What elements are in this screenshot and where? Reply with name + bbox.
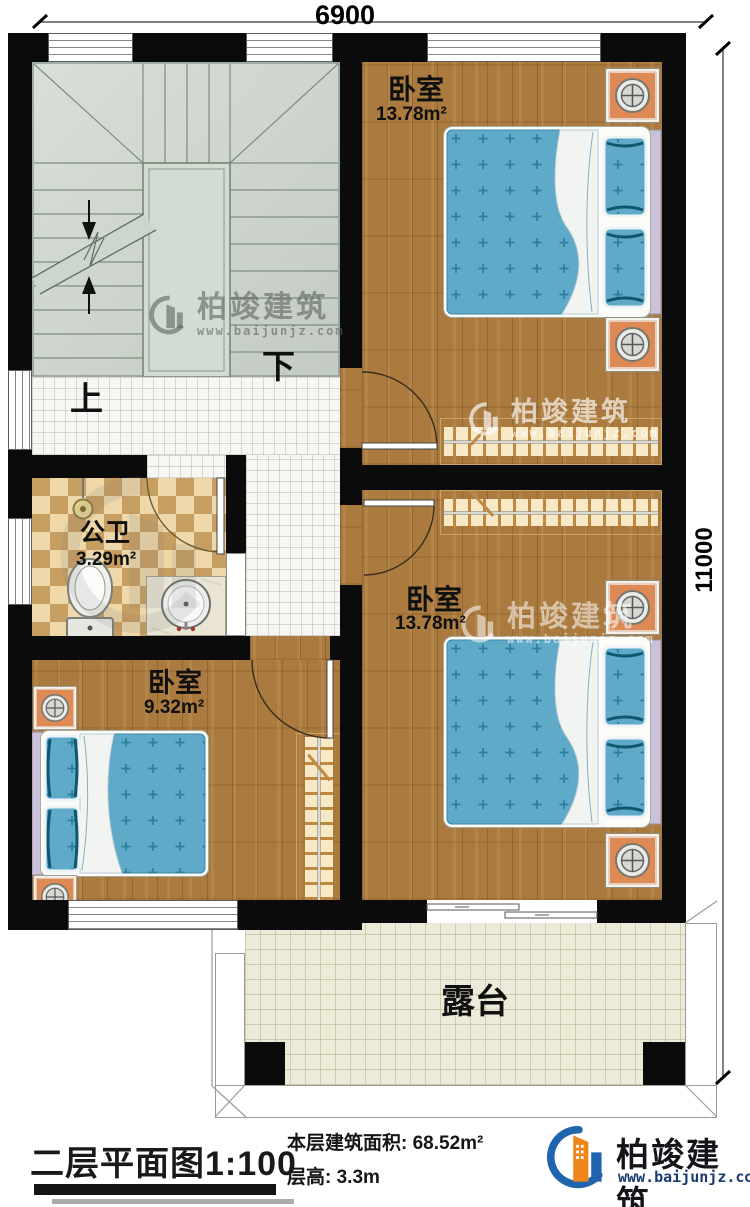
terrace-parapet bbox=[215, 953, 245, 1086]
double-bed bbox=[443, 636, 662, 828]
title-underline-shadow bbox=[52, 1199, 294, 1204]
window bbox=[8, 370, 32, 450]
terrace-parapet bbox=[685, 923, 717, 1086]
floor-plan: 柏竣建筑 www.baijunjz.com 柏竣建筑 www.baijunjz.… bbox=[0, 0, 750, 1207]
floor-height-label: 层高: bbox=[287, 1167, 331, 1188]
wall-segment bbox=[8, 636, 250, 660]
wall-segment bbox=[32, 455, 147, 478]
closet bbox=[296, 733, 342, 928]
plan-title-text: 二层平面图 bbox=[30, 1145, 205, 1183]
pillow bbox=[45, 807, 79, 871]
staircase bbox=[32, 62, 340, 377]
window bbox=[427, 33, 601, 62]
window bbox=[8, 518, 32, 605]
wall-segment bbox=[226, 455, 246, 553]
wall-segment bbox=[8, 33, 32, 370]
company-logo-url: www.baijunjz.com bbox=[618, 1168, 750, 1186]
double-bed bbox=[443, 126, 662, 318]
nightstand-lamp-icon bbox=[33, 686, 77, 730]
double-bed bbox=[32, 730, 209, 877]
bedroom-mid-area: 13.78m² bbox=[395, 614, 466, 633]
bedroom-top-area: 13.78m² bbox=[376, 105, 447, 124]
closet bbox=[440, 490, 662, 535]
nightstand-lamp-icon bbox=[605, 68, 660, 123]
bathroom-door-threshold bbox=[147, 455, 226, 478]
wall-segment bbox=[226, 553, 246, 636]
pillow bbox=[604, 228, 646, 307]
bathroom-label: 公卫 bbox=[80, 521, 130, 546]
bedroom-mid-label: 卧室 bbox=[406, 586, 462, 614]
bedroom-top-label: 卧室 bbox=[388, 76, 444, 104]
wall-segment bbox=[133, 33, 246, 62]
nightstand-lamp-icon bbox=[605, 580, 660, 635]
wall-segment bbox=[238, 900, 362, 930]
terrace-label: 露台 bbox=[400, 985, 550, 1019]
pillow bbox=[604, 137, 646, 216]
nightstand-lamp-icon bbox=[605, 317, 660, 372]
bedroom-small-label: 卧室 bbox=[148, 670, 202, 697]
wall-segment bbox=[662, 33, 686, 923]
company-logo-icon bbox=[545, 1124, 611, 1194]
dimension-width-label: 6900 bbox=[295, 2, 395, 29]
hanger-icon bbox=[470, 490, 495, 517]
floor-area-label: 本层建筑面积: bbox=[287, 1133, 407, 1154]
wall-segment bbox=[362, 900, 427, 923]
window bbox=[68, 900, 238, 930]
closet bbox=[440, 418, 662, 465]
terrace-pillar bbox=[643, 1042, 685, 1085]
wall-segment bbox=[340, 448, 362, 505]
stairs-down-label: 下 bbox=[262, 350, 295, 383]
pillow bbox=[604, 738, 646, 817]
hanger-icon bbox=[470, 419, 495, 446]
terrace-parapet bbox=[215, 1085, 717, 1118]
wall-segment bbox=[362, 465, 662, 490]
hallway-floor bbox=[246, 455, 340, 636]
window bbox=[246, 33, 333, 62]
door-threshold bbox=[340, 368, 362, 448]
floor-height-row: 层高: 3.3m bbox=[287, 1162, 380, 1189]
door-threshold bbox=[250, 636, 330, 660]
bedroom-small-area: 9.32m² bbox=[144, 698, 204, 717]
wall-segment bbox=[340, 62, 362, 368]
wall-segment bbox=[8, 450, 32, 518]
wall-segment bbox=[333, 33, 427, 62]
wall-segment bbox=[330, 636, 362, 660]
plan-scale: 1:100 bbox=[205, 1145, 297, 1183]
wall-segment bbox=[597, 900, 686, 923]
pillow bbox=[604, 647, 646, 726]
window bbox=[48, 33, 133, 62]
terrace-pillar bbox=[245, 1042, 285, 1085]
floor-area-row: 本层建筑面积: 68.52m² bbox=[287, 1128, 483, 1155]
floor-area-value: 68.52m² bbox=[413, 1133, 484, 1154]
dimension-height-label: 11000 bbox=[693, 510, 717, 610]
sliding-door-opening bbox=[427, 900, 597, 923]
nightstand-lamp-icon bbox=[605, 833, 660, 888]
bathroom-area: 3.29m² bbox=[76, 550, 136, 569]
sink-icon bbox=[146, 576, 226, 636]
stair-landing bbox=[143, 163, 230, 377]
stairs-up-label: 上 bbox=[70, 382, 103, 415]
pillow bbox=[45, 736, 79, 800]
floor-height-value: 3.3m bbox=[337, 1167, 380, 1188]
door-threshold bbox=[340, 500, 362, 585]
title-underline bbox=[34, 1184, 276, 1195]
wall-segment bbox=[8, 900, 68, 930]
plan-title: 二层平面图1:100 bbox=[30, 1136, 297, 1185]
hanger-icon bbox=[307, 754, 331, 782]
